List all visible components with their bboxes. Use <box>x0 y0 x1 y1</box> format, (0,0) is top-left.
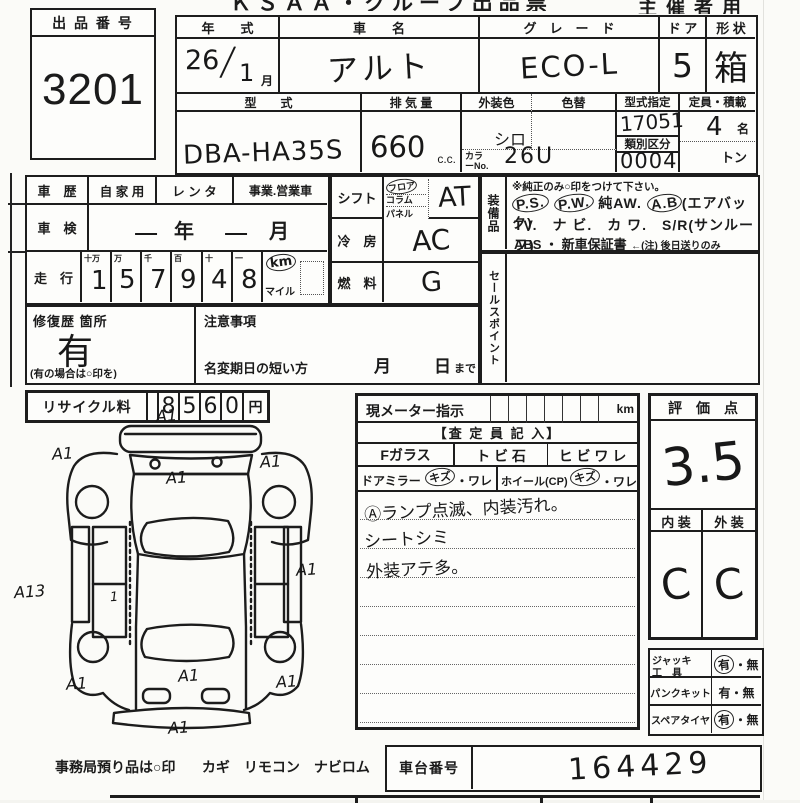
front-glass-label: Fガラス <box>358 444 455 467</box>
meter-unit-cell: km <box>598 396 637 423</box>
mileage-digit-cell: 十 4 <box>203 252 233 302</box>
windshield <box>141 518 233 557</box>
mileage-col-label: 十 <box>205 253 213 264</box>
lot-number-label: 出 品 番 号 <box>32 10 154 37</box>
spare-tire-row: スペアタイヤ 有・無 <box>650 706 761 733</box>
year-month-value: 1 <box>239 59 254 87</box>
meter-digit-box <box>544 396 562 423</box>
notice-label: 注意事項 <box>204 311 256 330</box>
meter-digit-box <box>580 396 598 423</box>
int-ext-value-row: C C <box>651 532 755 637</box>
assessor-note: 外装アテ多。 <box>365 552 468 582</box>
mileage-digit-cell: 千 7 <box>142 252 172 302</box>
load-cell: トン <box>680 142 755 172</box>
ac-value: AC <box>412 223 452 258</box>
model-value: DBA-HA35S <box>183 135 344 171</box>
score-value-cell: 3.5 <box>651 424 755 506</box>
mileage-col-label: 十万 <box>84 253 100 264</box>
ext-color-header: 外装色 <box>462 94 532 112</box>
damage-annotation: A1 <box>155 405 177 425</box>
puncture-kit-row: パンクキット 有・無 <box>650 678 761 706</box>
shaken-year-unit: 年 <box>174 215 194 244</box>
auction-sheet: ＫＳＡＡ・グループ出品票 主催者用 出 品 番 号 3201 年 式 車 名 グ… <box>0 0 800 800</box>
repair-box: 修復歴 箇所 有 (有の場合は○印を) <box>25 305 197 385</box>
equipment-label: 装備品 <box>482 177 507 249</box>
office-note: 事務局預り品は○印 <box>55 759 175 775</box>
shaken-month-unit: 月 <box>269 215 289 244</box>
spare-tire-yes-circled: 有 <box>713 709 735 730</box>
model-cell: DBA-HA35S <box>177 112 362 172</box>
jack-row: ジャッキ 工 具 有・無 <box>650 650 761 678</box>
damage-annotation: A1 <box>275 671 297 691</box>
mileage-label: 走 行 <box>27 252 82 302</box>
scan-edge-line <box>10 173 12 387</box>
jack-label2: 工 具 <box>652 664 682 679</box>
jack-no: 無 <box>747 656 759 673</box>
mileage-col-label: 一 <box>235 253 243 264</box>
capacity-value: 4 <box>706 112 723 142</box>
interior-value: C <box>658 558 694 611</box>
name-header: 車 名 <box>280 17 480 39</box>
rear-window <box>141 625 233 661</box>
mirror-kizu-circled: キズ <box>424 466 456 488</box>
meter-digit-box <box>508 396 526 423</box>
sales-point-label: セールスポイント <box>482 254 507 382</box>
equipment-note: ※純正のみ○印をつけて下さい。 <box>512 179 665 194</box>
shift-value-cell: AT <box>429 177 479 219</box>
name-value: アルト <box>326 40 433 90</box>
shape-cell: 箱 <box>707 39 755 94</box>
cowl-panel <box>130 455 252 474</box>
load-unit: トン <box>721 147 747 166</box>
year-cell: 26 / 1 月 <box>177 39 280 94</box>
damage-annotation: A1 <box>51 443 73 463</box>
note-ruled-line <box>360 664 635 665</box>
color-no-cell: カラーNo. 26U <box>462 150 617 172</box>
shift-options: フロア コラム パネル <box>384 179 429 219</box>
front-bumper <box>120 426 261 452</box>
puncture-kit-value-cell: 有・無 <box>712 678 761 706</box>
fuel-value-cell: G <box>384 263 479 302</box>
mileage-digit-cell: 万 5 <box>112 252 142 302</box>
mileage-unit-cell: km マイル <box>263 252 298 302</box>
mileage-digit: 9 <box>180 265 197 295</box>
damage-annotation: A1 <box>259 451 281 471</box>
jack-label-cell: ジャッキ 工 具 <box>650 650 712 678</box>
washer-nozzle <box>151 460 160 469</box>
exterior-value-cell: C <box>703 532 755 637</box>
cabin-right-edge <box>244 554 246 709</box>
note-ruled-line <box>360 606 635 607</box>
note-ruled-line <box>360 635 635 636</box>
history-table: 車 歴 自 家 用 レ ン タ 事業.営業車 車 検 一 年 一 月 走 行 十… <box>25 175 330 305</box>
chassis-value: 164429 <box>567 745 713 788</box>
displacement-value: 660 <box>370 130 425 164</box>
score-box: 評 価 点 3.5 内 装 外 装 C C <box>648 393 758 640</box>
type-designation-cell: 17051 <box>617 112 680 137</box>
mileage-digit-cell: 十万 1 <box>82 252 112 302</box>
puncture-kit-label: パンクキット <box>650 685 711 700</box>
interior-label: 内 装 <box>651 510 703 532</box>
damage-annotation: A1 <box>65 673 87 693</box>
name-cell: アルト <box>280 39 480 94</box>
notice-box: 注意事項 名変期日の短い方 月 日 まで <box>194 305 480 385</box>
spare-tire-no: 無 <box>747 711 759 728</box>
organizer-strip: 主催者用 <box>638 0 768 14</box>
mirror-wheel-row: ドアミラー キズ ・ワレ ホイール(CP) キズ ・ワレ <box>358 467 637 492</box>
assessor-note: シートシミ <box>363 523 449 552</box>
mileage-empty-box <box>300 261 324 295</box>
office-note-row: 事務局預り品は○印 カギ リモコン ナビロム <box>55 757 370 777</box>
interior-value-cell: C <box>651 532 703 637</box>
bottom-partial-divider <box>355 798 358 803</box>
door-mirror-label: ドアミラー <box>361 472 421 489</box>
fuel-value: G <box>420 266 443 298</box>
history-business: 事業.営業車 <box>234 177 327 205</box>
fuel-label: 燃 料 <box>332 263 384 302</box>
airbag-circled: A.B <box>646 192 683 214</box>
organizer-label: 主催者用 <box>638 0 750 14</box>
bottom-partial-divider <box>650 798 653 803</box>
meter-box: 現メーター指示 km 【査 定 員 記 入】 Fガラス ト ビ 石 ヒ ビ ワ … <box>355 393 640 730</box>
mileage-digit: 7 <box>150 265 167 295</box>
puncture-kit-yes: 有 <box>718 684 730 701</box>
exterior-value: C <box>711 558 747 611</box>
lot-number-box: 出 品 番 号 3201 <box>30 8 156 160</box>
door-cell: 5 <box>660 39 707 94</box>
year-slash: / <box>218 38 238 85</box>
color-no-value: 26U <box>504 144 554 169</box>
shaken-year-value: 一 <box>134 215 158 250</box>
damage-annotation: A1 <box>295 559 317 579</box>
meter-digit-box <box>490 396 508 423</box>
capacity-cell: 4 名 <box>680 112 755 142</box>
mileage-digit: 8 <box>241 265 258 295</box>
form-title-strip: ＫＳＡＡ・グループ出品票 <box>230 0 580 11</box>
pw-circled: P.W. <box>553 192 595 215</box>
door-value: 5 <box>672 46 693 85</box>
crack-label: ヒ ビ ワ レ <box>548 444 637 467</box>
history-private: 自 家 用 <box>89 177 157 205</box>
note-ruled-line <box>360 693 635 694</box>
right-front-wheel <box>263 486 295 518</box>
bottom-partial-divider <box>540 798 543 803</box>
model-header: 型 式 <box>177 94 362 112</box>
mileage-digit-cell: 百 9 <box>172 252 203 302</box>
form-title: ＫＳＡＡ・グループ出品票 <box>230 0 553 11</box>
repair-note: (有の場合は○印を) <box>30 366 117 381</box>
wheel-label: ホイール(CP) <box>501 473 568 489</box>
scan-tick <box>8 203 25 205</box>
jack-value-cell: 有・無 <box>712 650 761 678</box>
chassis-label: 車台番号 <box>387 747 473 789</box>
spare-tire-label-cell: スペアタイヤ <box>650 706 712 733</box>
mirror-ware: ・ワレ <box>456 472 492 489</box>
door-header: ド ア <box>660 17 707 39</box>
capacity-unit: 名 <box>737 120 749 137</box>
year-header: 年 式 <box>177 17 280 39</box>
warranty-note: ←(注) 後日送りのみ <box>631 241 720 252</box>
grade-cell: ECO-L <box>480 39 660 94</box>
tail-light <box>143 689 170 703</box>
notice-made: まで <box>454 360 476 376</box>
wheel-cell: ホイール(CP) キズ ・ワレ <box>498 467 637 492</box>
mileage-digit: 1 <box>91 266 108 296</box>
damage-annotation: 1 <box>109 590 118 606</box>
jack-yes-circled: 有 <box>713 653 735 674</box>
meter-digit-box <box>562 396 580 423</box>
scan-tick <box>8 251 25 253</box>
grade-header: グ レ ー ド <box>480 17 660 39</box>
meter-unit: km <box>617 402 634 416</box>
mileage-col-label: 百 <box>174 253 182 264</box>
shift-label: シフト <box>332 177 384 219</box>
ac-value-cell: AC <box>384 219 479 263</box>
shaken-cell: 一 年 一 月 <box>89 205 327 252</box>
wheel-kizu-circled: キズ <box>569 466 601 488</box>
notice-month: 月 <box>374 352 391 377</box>
chassis-value-cell: 164429 <box>473 747 759 789</box>
month-suffix: 月 <box>261 72 273 89</box>
year-value: 26 <box>185 45 219 76</box>
int-ext-header-row: 内 装 外 装 <box>651 508 755 532</box>
mile-unit: マイル <box>265 283 295 298</box>
assessor-header: 【査 定 員 記 入】 <box>358 423 637 444</box>
equipment-box: 装備品 ※純正のみ○印をつけて下さい。 P.S. P.W. 純AW. A.B(エ… <box>480 175 760 252</box>
color-change-header: 色替 <box>532 94 617 112</box>
mileage-digit: 4 <box>211 265 228 295</box>
score-label: 評 価 点 <box>651 396 755 421</box>
chassis-box: 車台番号 164429 <box>385 745 762 792</box>
class-cell: 0004 <box>617 153 680 172</box>
lot-number-value: 3201 <box>32 50 154 130</box>
ac-label: 冷 房 <box>332 219 384 263</box>
class-value: 0004 <box>620 149 677 173</box>
tail-light <box>202 689 229 703</box>
shift-value: AT <box>437 181 471 214</box>
ps-circled: P.S. <box>511 192 550 214</box>
transfer-deadline-label: 名変期日の短い方 <box>204 358 308 377</box>
notice-day: 日 <box>434 352 451 377</box>
note-ruled-line <box>360 722 635 723</box>
shape-value: 箱 <box>714 41 748 90</box>
color-no-label: カラーNo. <box>465 152 491 172</box>
mileage-col-label: 千 <box>144 253 152 264</box>
car-damage-diagram <box>26 412 346 757</box>
history-label: 車 歴 <box>27 177 89 205</box>
displacement-cell: 660 c.c. <box>362 112 462 172</box>
puncture-kit-label-cell: パンクキット <box>650 678 712 706</box>
cabin-left-edge <box>136 554 138 709</box>
office-items: カギ リモコン ナビロム <box>202 759 370 775</box>
spare-tire-label: スペアタイヤ <box>651 712 710 727</box>
vehicle-table: 年 式 車 名 グ レ ー ド ド ア 形 状 26 / 1 月 アルト ECO… <box>175 15 758 175</box>
shaken-month-value: 一 <box>224 215 248 250</box>
spare-tire-value-cell: 有・無 <box>712 706 761 733</box>
meter-digit-box <box>526 396 544 423</box>
score-value: 3.5 <box>659 431 748 499</box>
mileage-col-label: 万 <box>114 253 122 264</box>
capacity-header: 定員・積載 <box>680 94 755 112</box>
aw-item: 純AW. <box>598 195 642 211</box>
glass-row: Fガラス ト ビ 石 ヒ ビ ワ レ <box>358 444 637 467</box>
damage-annotation: A13 <box>13 581 46 602</box>
puncture-kit-no: 無 <box>743 684 755 701</box>
left-front-wheel <box>76 486 108 518</box>
sales-point-box: セールスポイント <box>480 252 760 385</box>
damage-annotation: A1 <box>177 665 199 685</box>
bottom-partial-table <box>110 795 760 800</box>
mileage-digit: 5 <box>119 265 136 295</box>
grade-value: ECO-L <box>519 46 619 85</box>
shift-table: シフト フロア コラム パネル AT 冷 房 AC 燃 料 G <box>330 175 480 305</box>
abs-warranty: ABS ・ 新車保証書 <box>514 237 627 252</box>
type-designation-value: 17051 <box>619 108 684 136</box>
displacement-unit: c.c. <box>437 152 456 166</box>
accessories-box: ジャッキ 工 具 有・無 パンクキット 有・無 スペアタイヤ 有・無 <box>648 648 764 736</box>
meter-label: 現メーター指示 <box>366 401 464 421</box>
door-mirror-cell: ドアミラー キズ ・ワレ <box>358 467 498 492</box>
displacement-header: 排 気 量 <box>362 94 462 112</box>
damage-annotation: A1 <box>167 717 189 737</box>
stone-chip-label: ト ビ 石 <box>455 444 548 467</box>
wheel-ware: ・ワレ <box>601 473 637 490</box>
equipment-line3: ABS ・ 新車保証書 ←(注) 後日送りのみ <box>514 234 721 254</box>
shaken-label: 車 検 <box>27 205 89 252</box>
history-rental: レ ン タ <box>157 177 234 205</box>
meter-header-row: 現メーター指示 km <box>358 396 637 423</box>
km-unit-circled: km <box>265 252 297 273</box>
exterior-label: 外 装 <box>703 510 755 532</box>
shape-header: 形 状 <box>707 17 755 39</box>
mileage-digit-cell: 一 8 <box>233 252 263 302</box>
shift-option-column: コラム <box>386 193 426 207</box>
damage-annotation: A1 <box>165 467 187 487</box>
